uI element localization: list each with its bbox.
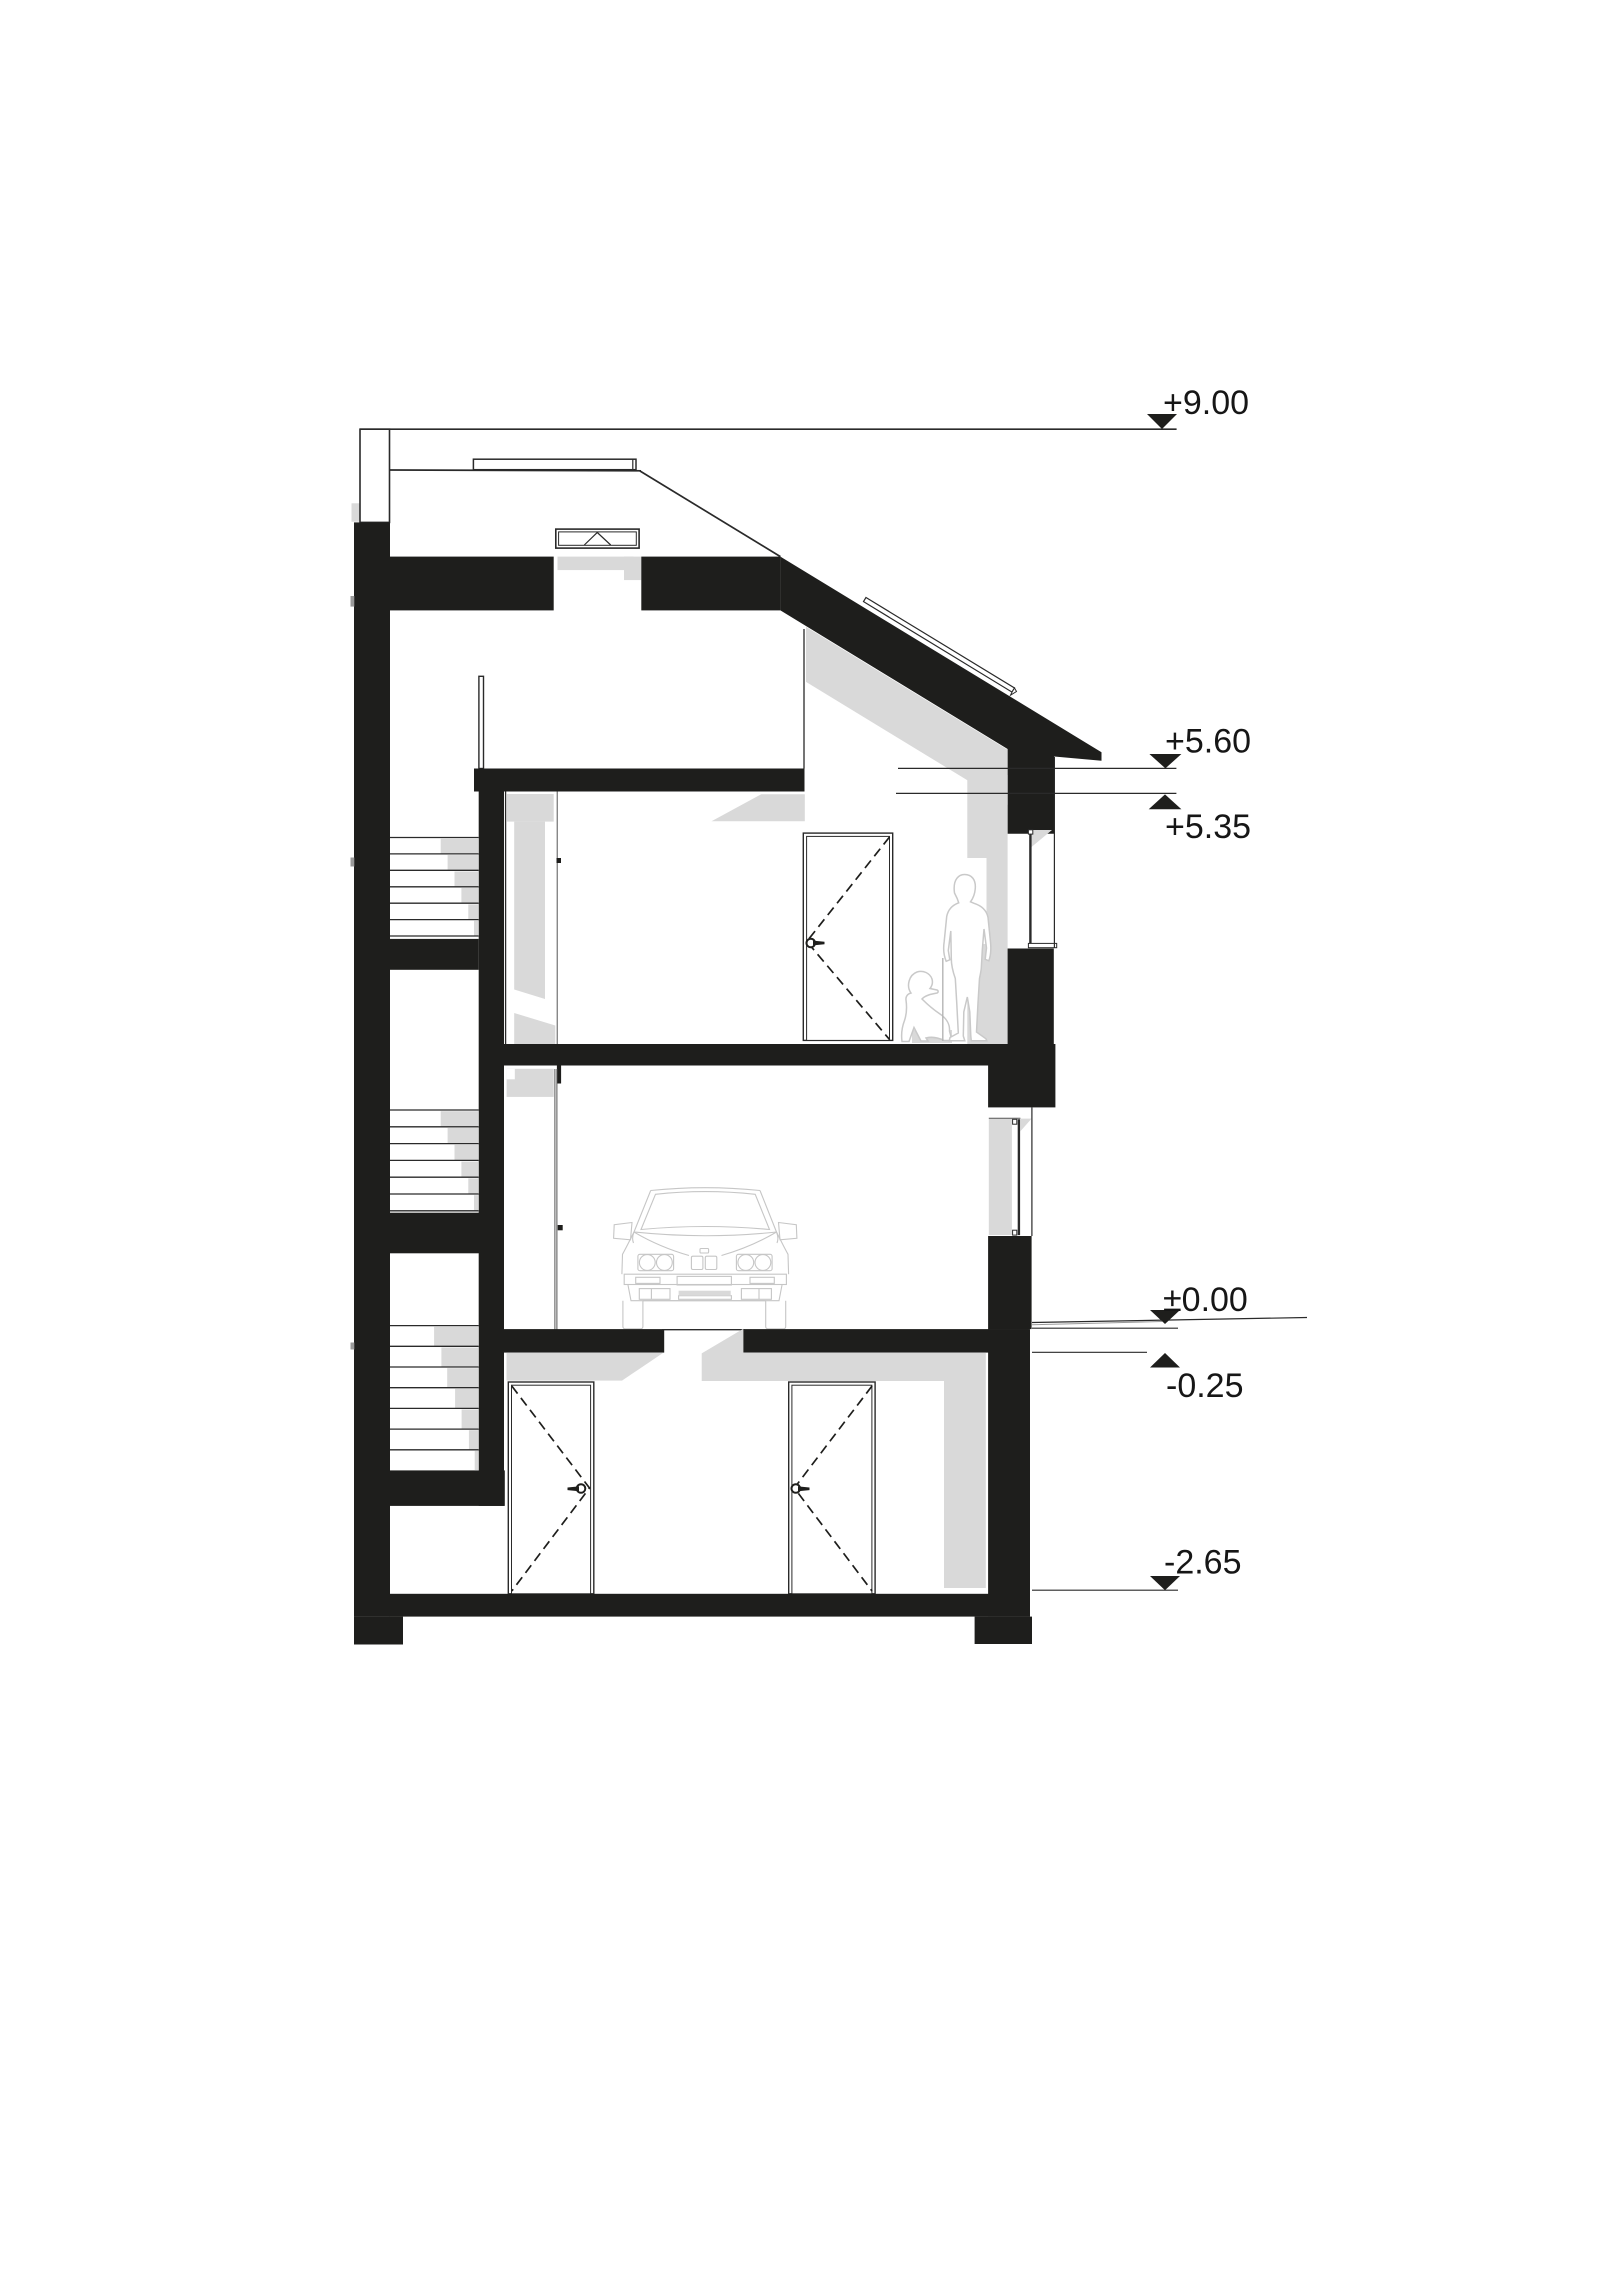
svg-text:±0.00: ±0.00: [1163, 1281, 1248, 1319]
svg-text:-0.25: -0.25: [1166, 1367, 1244, 1405]
svg-text:+5.35: +5.35: [1165, 808, 1251, 846]
svg-text:+5.60: +5.60: [1165, 723, 1251, 761]
svg-text:+9.00: +9.00: [1163, 384, 1249, 422]
svg-text:-2.65: -2.65: [1164, 1544, 1242, 1582]
